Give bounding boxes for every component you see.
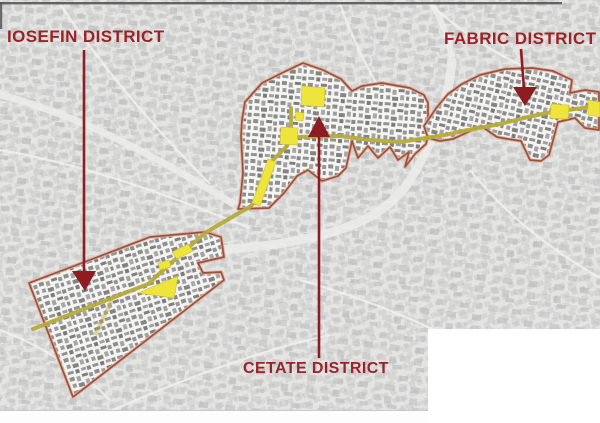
fabric-square [550,104,569,119]
top-border-line [0,2,562,4]
cetate-tiny-square [295,112,304,121]
iosefin-district-label: IOSEFIN DISTRICT [7,27,165,47]
cetate-main-square [301,86,325,107]
cetate-small-square [280,127,298,145]
edge-square [588,100,600,117]
legend-cover-box [428,329,600,423]
cetate-district-label: CETATE DISTRICT [243,360,389,378]
city-districts-map: IOSEFIN DISTRICT FABRIC DISTRICT CETATE … [0,0,600,423]
fabric-district-label: FABRIC DISTRICT [444,29,596,49]
